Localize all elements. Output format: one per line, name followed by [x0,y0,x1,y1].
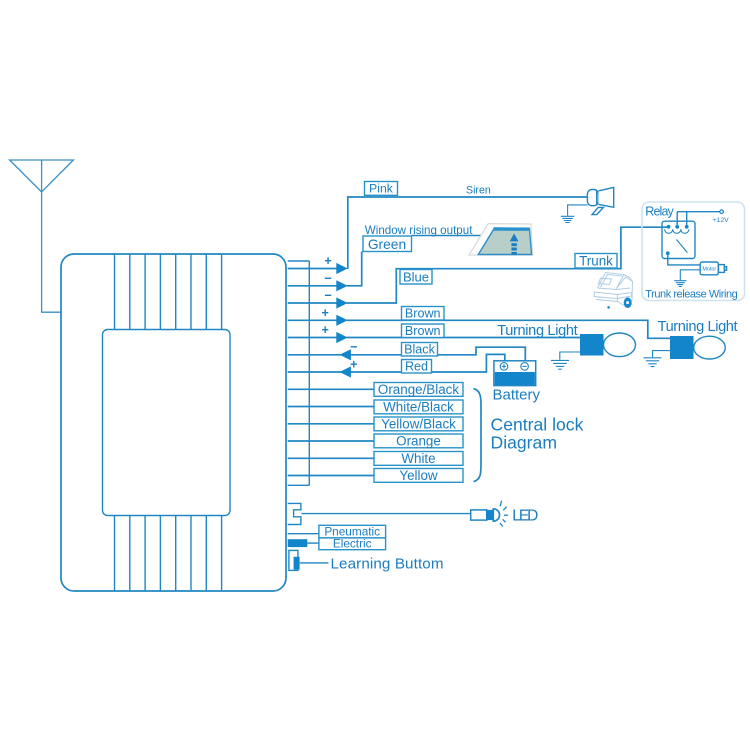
svg-text:Orange: Orange [396,433,441,448]
svg-text:Diagram: Diagram [491,432,557,452]
svg-text:Electric: Electric [333,537,372,551]
svg-text:Turning Light: Turning Light [497,323,578,339]
svg-text:Relay: Relay [645,205,674,219]
svg-text:Orange/Black: Orange/Black [378,382,459,397]
svg-text:Red: Red [405,360,428,374]
svg-text:Brown: Brown [405,307,441,321]
svg-text:Central lock: Central lock [491,414,584,434]
svg-text:−: − [350,340,357,354]
svg-text:+: + [350,358,357,372]
svg-text:Siren: Siren [466,185,491,197]
svg-text:Blue: Blue [403,269,429,284]
svg-text:Trunk: Trunk [579,254,613,269]
svg-text:Battery: Battery [493,386,541,403]
svg-text:Learning Buttom: Learning Buttom [331,556,444,573]
svg-text:Green: Green [368,237,406,252]
svg-text:−: − [324,272,331,286]
svg-text:White/Black: White/Black [383,399,454,414]
svg-text:Trunk release Wiring: Trunk release Wiring [645,288,738,300]
svg-text:Yellow: Yellow [399,468,438,483]
svg-text:Turning Light: Turning Light [658,319,738,335]
svg-text:+: + [322,323,329,337]
svg-text:LED: LED [512,507,538,524]
svg-text:Pink: Pink [369,182,394,196]
svg-text:−: − [324,289,331,303]
svg-text:White: White [401,451,435,466]
svg-text:Yellow/Black: Yellow/Black [381,416,456,431]
svg-text:Black: Black [404,343,435,357]
svg-text:Motor: Motor [702,266,716,272]
svg-text:Brown: Brown [405,324,441,338]
svg-text:+: + [322,306,329,320]
svg-text:+: + [324,254,331,268]
svg-text:+12V: +12V [713,217,730,224]
